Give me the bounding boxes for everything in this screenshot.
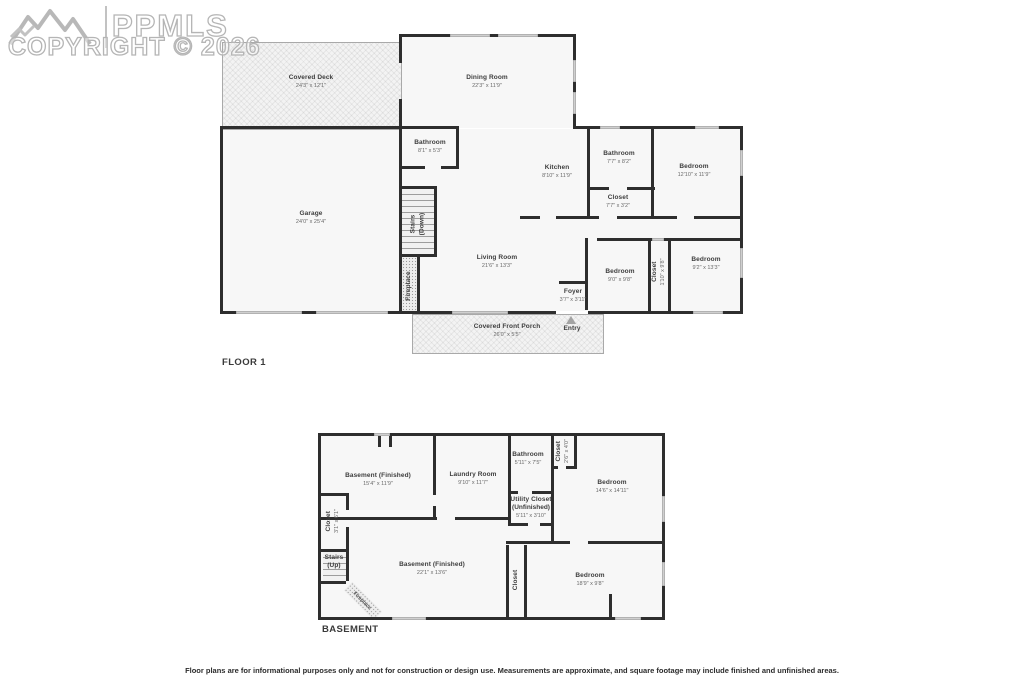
wall xyxy=(441,166,459,169)
wall xyxy=(320,493,346,496)
wall xyxy=(399,166,425,169)
window xyxy=(452,311,508,314)
room-label-basement-bedroom-b: Bedroom 18'9" x 9'8" xyxy=(575,572,604,588)
watermark-copyright: COPYRIGHT © 2026 xyxy=(8,33,261,62)
window xyxy=(662,496,665,522)
wall xyxy=(566,466,577,469)
window xyxy=(695,126,719,129)
window xyxy=(740,248,743,278)
room-label-basement-closet-b: Closet 3'1" x 6'1" xyxy=(325,509,341,533)
wall xyxy=(508,433,511,493)
wall xyxy=(556,216,599,219)
room-label-laundry-room: Laundry Room 9'10" x 11'7" xyxy=(449,471,496,487)
wall xyxy=(318,433,665,436)
window xyxy=(316,311,388,314)
room-label-front-porch: Covered Front Porch 26'0" x 5'5" xyxy=(474,323,541,339)
window xyxy=(600,126,620,129)
wall xyxy=(434,186,437,257)
room-label-basement-finished-1: Basement (Finished) 15'4" x 11'9" xyxy=(345,472,411,488)
room-label-basement-closet-c: Closet xyxy=(512,570,520,590)
wall xyxy=(320,549,346,552)
room-label-bedroom-se: Bedroom 9'2" x 13'3" xyxy=(691,256,720,272)
room-label-kitchen: Kitchen 8'10" x 11'9" xyxy=(542,164,572,180)
window xyxy=(740,150,743,176)
window xyxy=(573,60,576,82)
wall xyxy=(609,594,612,617)
room-label-fireplace: Fireplace xyxy=(405,271,413,300)
wall xyxy=(662,433,665,620)
wall xyxy=(588,541,665,544)
wall xyxy=(378,435,381,447)
wall xyxy=(346,527,349,551)
room-label-bathroom-2: Bathroom 7'7" x 8'2" xyxy=(603,150,635,166)
room-label-basement-bathroom: Bathroom 5'11" x 7'5" xyxy=(512,451,544,467)
wall xyxy=(399,126,459,129)
wall xyxy=(559,281,585,284)
wall xyxy=(508,523,528,526)
room-label-covered-deck: Covered Deck 24'3" x 12'1" xyxy=(289,74,334,90)
floor1-title: FLOOR 1 xyxy=(222,357,266,368)
room-label-entry: Entry xyxy=(563,325,580,333)
wall xyxy=(220,126,223,314)
wall xyxy=(668,238,671,311)
window xyxy=(374,433,390,436)
room-label-closet-mid: Closet 1'10" x 9'8" xyxy=(651,258,667,285)
wall xyxy=(389,435,392,447)
wall xyxy=(318,433,321,620)
room-label-stairs-down: Stairs (Down) xyxy=(409,213,426,236)
wall xyxy=(220,126,402,129)
window xyxy=(662,562,665,586)
wall xyxy=(506,545,509,617)
room-label-bedroom-ne: Bedroom 12'10" x 11'9" xyxy=(678,163,711,179)
window xyxy=(615,617,641,620)
window xyxy=(573,92,576,114)
window xyxy=(450,34,490,37)
room-label-foyer: Foyer 3'7" x 3'11" xyxy=(560,288,587,304)
room-label-dining-room: Dining Room 22'3" x 11'9" xyxy=(466,74,508,90)
wall xyxy=(456,126,459,169)
room-label-bedroom-mid: Bedroom 9'0" x 9'8" xyxy=(605,268,634,284)
wall xyxy=(318,617,665,620)
wall xyxy=(651,216,677,219)
wall xyxy=(346,551,349,581)
wall xyxy=(694,216,743,219)
wall xyxy=(346,493,349,510)
wall xyxy=(433,433,436,495)
watermark: PPMLS COPYRIGHT © 2026 xyxy=(8,4,228,70)
room-label-basement-bedroom-a: Bedroom 14'6" x 14'11" xyxy=(596,479,629,495)
room-label-stairs-up: Stairs (Up) xyxy=(325,554,344,570)
room-label-utility-closet: Utility Closet (Unfinished) 5'11" x 3'10… xyxy=(510,496,551,520)
window xyxy=(392,617,426,620)
wall xyxy=(520,216,540,219)
wall xyxy=(506,541,570,544)
wall xyxy=(320,581,346,584)
disclaimer-text: Floor plans are for informational purpos… xyxy=(0,666,1024,675)
basement-area xyxy=(321,436,662,617)
room-label-bathroom-1: Bathroom 8'1" x 5'3" xyxy=(414,139,446,155)
wall xyxy=(455,517,510,520)
room-label-garage: Garage 24'0" x 25'4" xyxy=(296,210,326,226)
wall xyxy=(399,37,402,63)
room-label-living-room: Living Room 21'6" x 13'3" xyxy=(477,254,517,270)
wall xyxy=(587,126,590,219)
window xyxy=(652,238,664,241)
wall xyxy=(540,523,554,526)
wall xyxy=(417,256,420,313)
wall xyxy=(399,186,437,189)
window xyxy=(498,34,538,37)
wall xyxy=(597,238,651,241)
wall xyxy=(587,187,609,190)
entry-arrow-icon xyxy=(566,316,576,324)
wall xyxy=(651,126,654,219)
window xyxy=(236,311,302,314)
wall xyxy=(399,99,402,129)
room-label-basement-closet-a: Closet 2'6" x 4'0" xyxy=(555,439,571,463)
wall xyxy=(617,216,655,219)
basement-title: BASEMENT xyxy=(322,624,379,635)
wall xyxy=(399,126,402,314)
wall xyxy=(524,545,527,617)
window xyxy=(693,311,723,314)
room-label-basement-finished-2: Basement (Finished) 22'1" x 13'6" xyxy=(399,561,465,577)
wall xyxy=(574,433,577,469)
room-label-hall-closet: Closet 7'7" x 3'2" xyxy=(606,194,630,210)
wall xyxy=(551,433,554,469)
floorplan-image: PPMLS COPYRIGHT © 2026 Covered Deck 24'3… xyxy=(0,0,1024,682)
